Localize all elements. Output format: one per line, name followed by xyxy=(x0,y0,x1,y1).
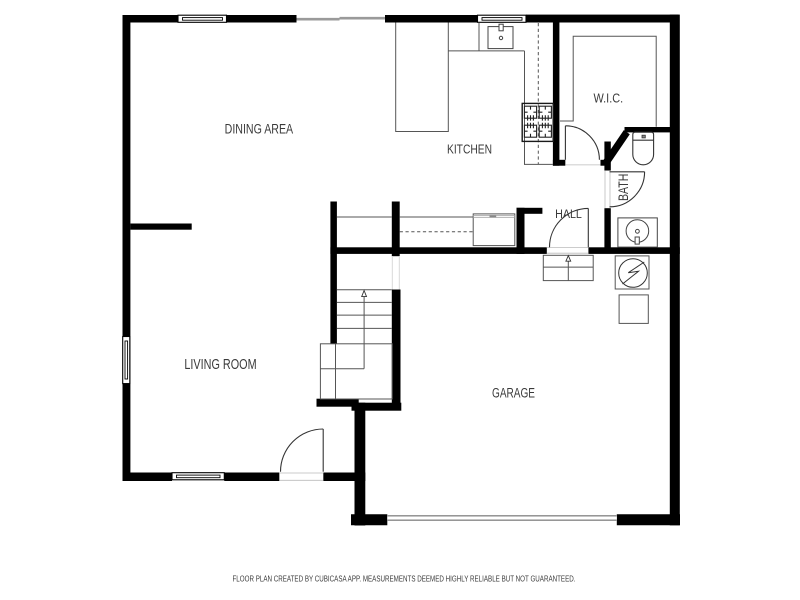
svg-text:FLOOR PLAN CREATED BY CUBICASA: FLOOR PLAN CREATED BY CUBICASA APP. MEAS… xyxy=(233,573,576,583)
svg-text:LIVING ROOM: LIVING ROOM xyxy=(184,357,256,373)
svg-text:BATH: BATH xyxy=(616,174,631,202)
svg-text:W.I.C.: W.I.C. xyxy=(594,91,624,106)
svg-text:DINING AREA: DINING AREA xyxy=(225,122,294,138)
svg-text:GARAGE: GARAGE xyxy=(492,385,535,401)
svg-text:KITCHEN: KITCHEN xyxy=(447,142,492,157)
svg-text:HALL: HALL xyxy=(555,207,582,221)
